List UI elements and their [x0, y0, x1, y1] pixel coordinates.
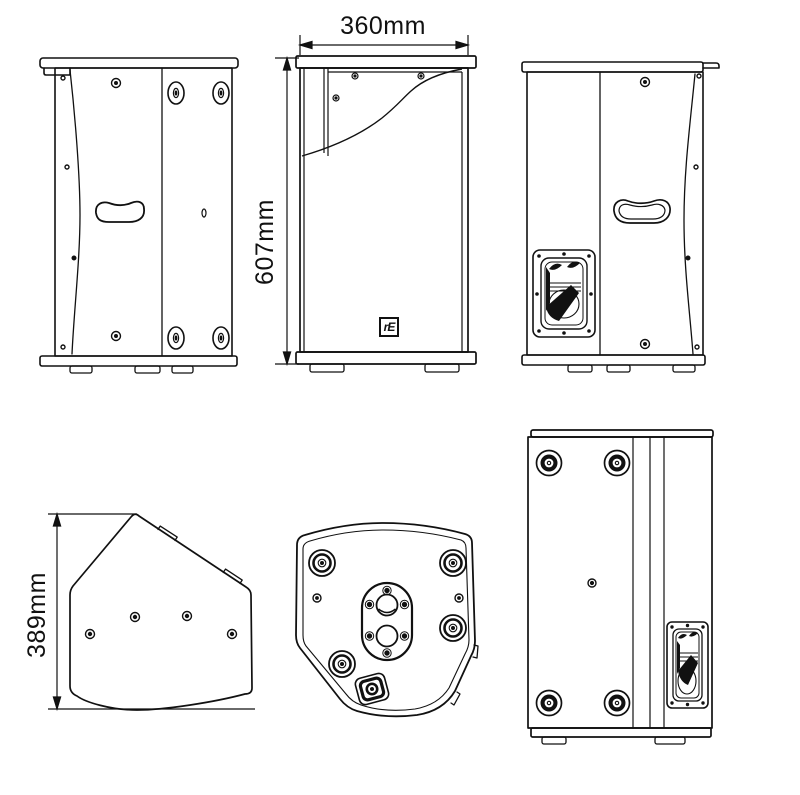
front-view [255, 10, 480, 380]
center-screw [588, 579, 596, 587]
rubber-feet [537, 451, 630, 716]
feet-tabs [70, 366, 193, 373]
pole-mount-plate [362, 583, 412, 660]
screws [333, 73, 424, 101]
feet-tabs [568, 365, 695, 372]
bottom-flange [40, 356, 237, 366]
brand-logo: rE [379, 317, 399, 337]
feet-tabs [542, 737, 685, 744]
top-view [25, 495, 270, 725]
flange-notch [703, 63, 719, 68]
side-handle-cutout [96, 202, 144, 222]
panel-recess-shading [677, 632, 698, 685]
top-flange [40, 58, 238, 68]
pole-socket-hole [377, 626, 398, 647]
cabinet-body [528, 437, 712, 728]
top-flange [296, 56, 476, 68]
bottom-lip [531, 728, 711, 737]
flange-notch [44, 68, 70, 75]
technical-drawing-canvas: 360mm 607mm 389mm rE [0, 0, 800, 795]
front-baffle-edge [684, 74, 695, 354]
connector-panel [667, 622, 708, 708]
grille-frame [302, 68, 462, 352]
bottom-flange [522, 355, 705, 365]
edge-tabs [158, 526, 242, 583]
depth-dimension-label: 389mm [23, 550, 51, 680]
left-side-view [30, 55, 245, 380]
pole-socket-connector [354, 672, 390, 706]
connector-panel [533, 250, 595, 337]
panel-seams [633, 437, 664, 728]
bottom-view [285, 505, 485, 720]
rubber-feet [309, 550, 466, 677]
screws [86, 612, 237, 639]
top-lip [531, 430, 713, 437]
top-outline [70, 514, 252, 710]
screws [61, 76, 121, 349]
width-dimension-label: 360mm [323, 12, 443, 41]
height-dimension-label: 607mm [251, 182, 279, 302]
bottom-flange [296, 352, 476, 364]
center-keyhole [202, 209, 206, 217]
front-baffle-edge [70, 70, 80, 354]
rigging-points [168, 82, 229, 349]
depth-dimension [48, 514, 255, 709]
right-side-view [515, 55, 725, 380]
rear-view [505, 425, 720, 765]
top-flange [522, 62, 703, 72]
baffle-wave-curve [302, 69, 462, 156]
side-handle-inner [619, 204, 665, 219]
feet-tabs [310, 364, 459, 372]
cabinet-body [300, 68, 468, 352]
